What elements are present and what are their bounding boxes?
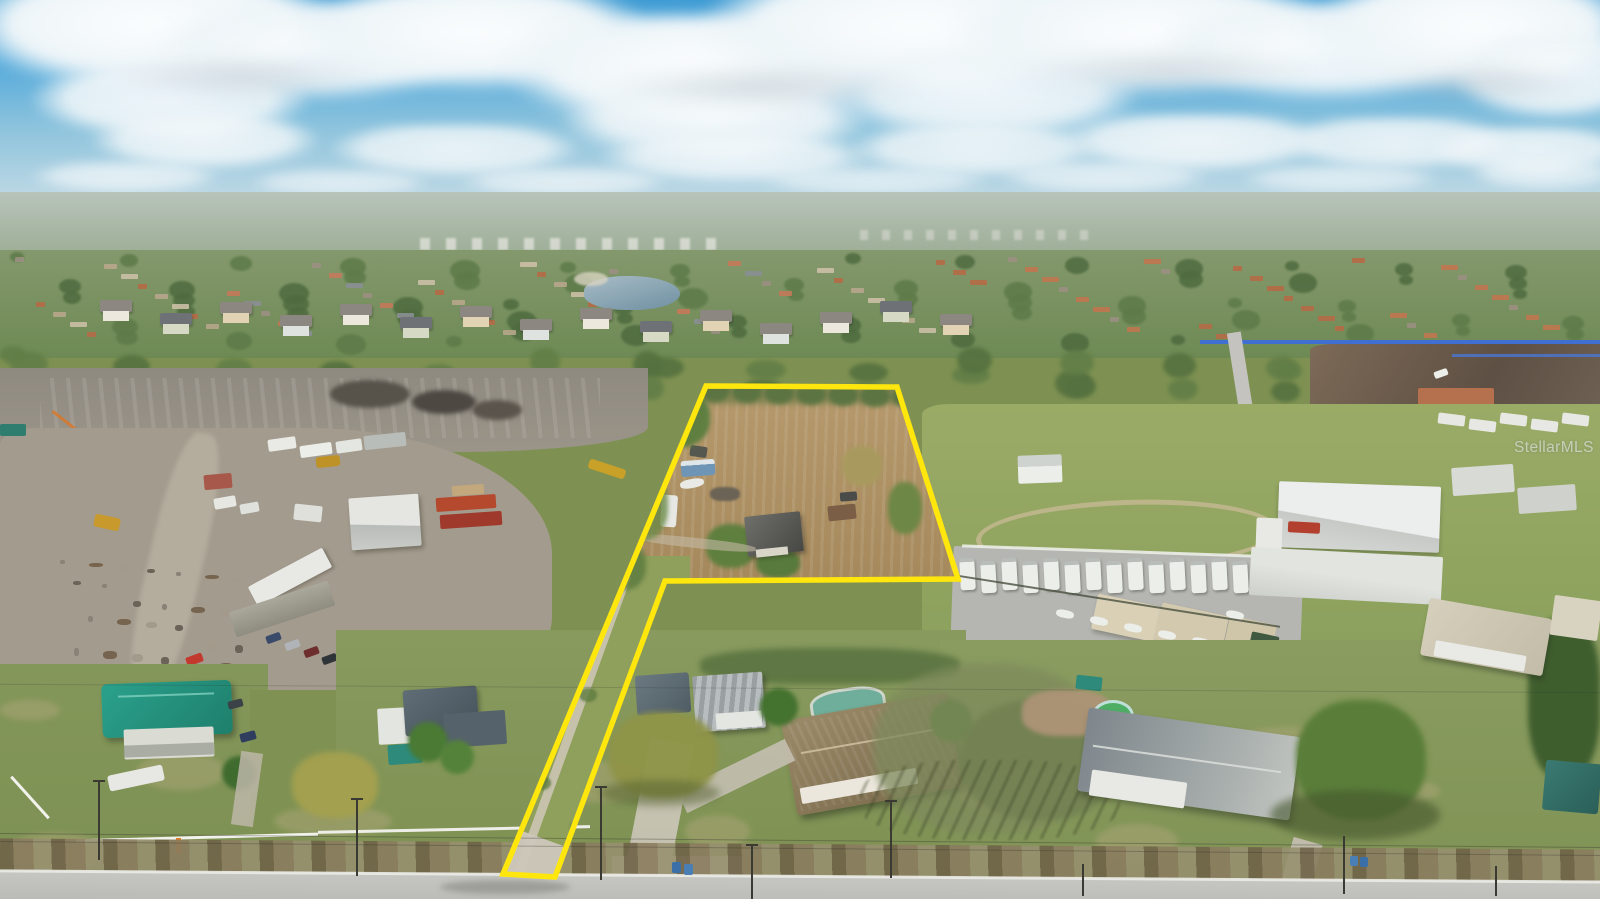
- watermark-stellarmls: StellarMLS: [1514, 439, 1594, 457]
- property-boundary-overlay: [0, 0, 1600, 899]
- aerial-photo: StellarMLS: [0, 0, 1600, 899]
- property-boundary-outline: [503, 386, 958, 877]
